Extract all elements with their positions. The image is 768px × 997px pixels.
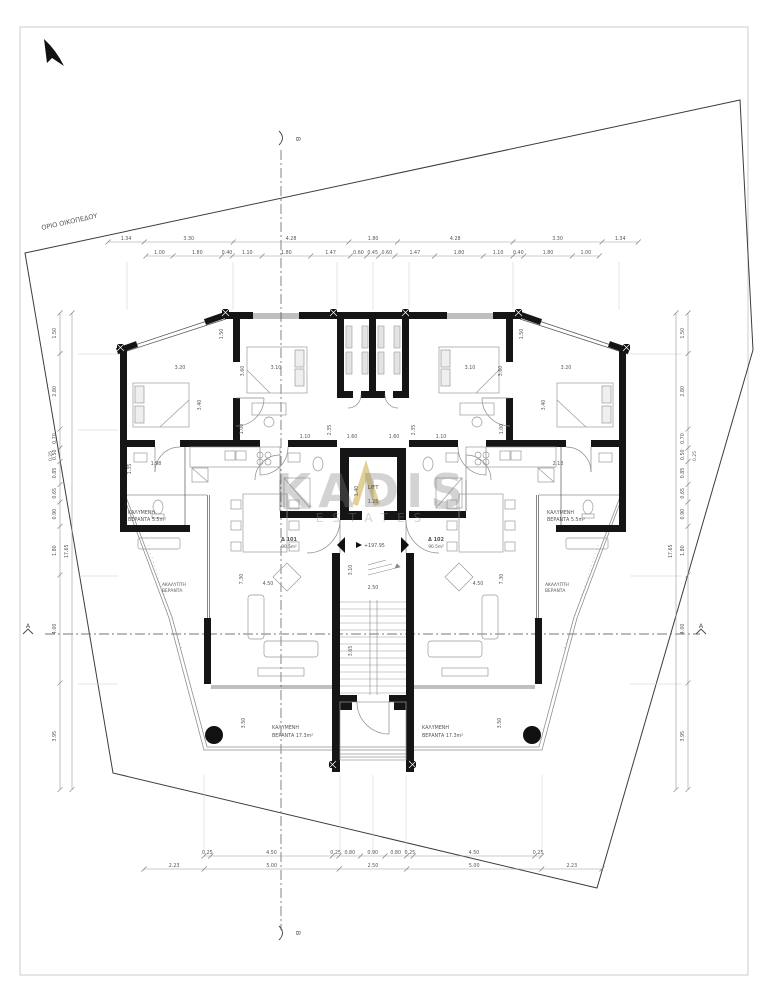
- door-swing-marker: [401, 537, 409, 553]
- dim-value: 0.50: [680, 449, 686, 460]
- dim-label: 3.40: [197, 400, 203, 411]
- dim-value: 3.30: [183, 236, 194, 242]
- dim-label: 2.35: [411, 425, 417, 436]
- dim-label: 1.35: [127, 464, 133, 475]
- watermark-sub: ESTATES: [316, 511, 430, 525]
- dim-label: 3.60: [240, 366, 246, 377]
- apartment-area: 90.5m²: [281, 544, 297, 550]
- dim-value: 0.25: [533, 850, 544, 856]
- veranda-label: ΒΕΡΑΝΤΑ: [162, 588, 182, 594]
- veranda-label: ΒΕΡΑΝΤΑ 17.3m²: [422, 733, 463, 739]
- dim-value: 4.28: [450, 236, 461, 242]
- dim-value: 4.28: [286, 236, 297, 242]
- veranda-label: ΒΕΡΑΝΤΑ 5.5m²: [547, 517, 585, 523]
- dim-value: 0.80: [390, 850, 401, 856]
- apartment-area: 90.5m²: [428, 544, 444, 550]
- dim-label: 4.50: [263, 581, 274, 587]
- dim-label: +197.95: [364, 543, 385, 549]
- veranda-label: ΚΑΛΥΜΕΝΗ: [422, 725, 449, 731]
- dim-value: 0.60: [381, 250, 392, 256]
- dim-label: 3.50: [497, 718, 503, 729]
- dim-value: 5.00: [266, 863, 277, 869]
- dim-value: 0.80: [344, 850, 355, 856]
- bed: [557, 383, 613, 427]
- dim-value: 0.25: [330, 850, 341, 856]
- veranda-label: ΒΕΡΑΝΤΑ 17.3m²: [272, 733, 313, 739]
- dim-value: 0.85: [52, 468, 58, 479]
- dim-label: 7.30: [499, 574, 505, 585]
- dim-chain-left-outer: 1.502.800.700.500.850.650.901.804.003.95: [52, 311, 63, 793]
- dim-value: 0.25: [405, 850, 416, 856]
- dim-label: 3.20: [175, 365, 186, 371]
- dim-label: 2.50: [368, 585, 379, 591]
- dim-value: 2.23: [566, 863, 577, 869]
- dim-value: 5.00: [469, 863, 480, 869]
- column: [523, 726, 541, 744]
- section-label: B: [294, 931, 302, 935]
- dim-label: 3.10: [465, 365, 476, 371]
- dim-value: 1.34: [121, 236, 132, 242]
- walls: [120, 312, 626, 772]
- dim-value: 4.00: [52, 624, 58, 635]
- dim-label: 3.60: [498, 366, 504, 377]
- dim-value: 17.65: [668, 544, 674, 558]
- kitchen-counter: [466, 447, 556, 482]
- dim-value: 0.70: [52, 433, 58, 444]
- section-label: A: [699, 622, 704, 630]
- veranda-label: ΚΑΛΥΜΕΝΗ: [547, 510, 574, 516]
- dim-value: 1.50: [52, 328, 58, 339]
- column: [205, 726, 223, 744]
- dim-value: 1.00: [580, 250, 591, 256]
- drawing-sheet: KADIS ESTATES 1.343.304.281.804.283.301.…: [0, 0, 768, 997]
- extension-lines: [78, 262, 682, 852]
- dim-label: 1.10: [436, 434, 447, 440]
- dim-value: 3.95: [52, 731, 58, 742]
- dim-value: 1.47: [409, 250, 420, 256]
- watermark-word: KADIS: [276, 464, 471, 518]
- veranda-label: ΚΑΛΥΜΕΝΗ: [272, 725, 299, 731]
- dim-value: 1.00: [154, 250, 165, 256]
- dim-label: 3.10: [271, 365, 282, 371]
- dim-label: LIFT: [367, 485, 379, 491]
- dim-label: 1.98: [151, 461, 162, 467]
- planter: [138, 538, 180, 549]
- dim-label: 1.60: [347, 434, 358, 440]
- dim-value: 2.50: [368, 863, 379, 869]
- planter: [566, 538, 608, 549]
- dim-value: 2.80: [52, 386, 58, 397]
- watermark: KADIS ESTATES: [276, 464, 471, 525]
- sofa: [248, 563, 498, 676]
- veranda-label: ΒΕΡΑΝΤΑ: [545, 588, 565, 594]
- dim-label: 7.30: [239, 574, 245, 585]
- dim-value: 0.65: [680, 488, 686, 499]
- dim-value: 0.60: [353, 250, 364, 256]
- dim-value: 0.25: [202, 850, 213, 856]
- text-labels: 3.203.103.603.401.501.503.103.203.603.40…: [26, 137, 704, 935]
- dim-label: 1.10: [300, 434, 311, 440]
- dim-value: 1.10: [242, 250, 253, 256]
- veranda-label: ΒΕΡΑΝΤΑ 5.5m²: [128, 517, 166, 523]
- veranda-slab: [123, 495, 623, 750]
- dim-value: 2.23: [169, 863, 180, 869]
- dim-label: 3.20: [561, 365, 572, 371]
- dim-label: 0.25: [48, 451, 54, 461]
- dim-chain-top-row-1: 1.343.304.281.804.283.301.34: [106, 236, 641, 245]
- dim-value: 2.80: [680, 386, 686, 397]
- veranda-label: ΑΚΑΛΥΠΤΗ: [545, 582, 569, 588]
- dim-value: 3.30: [552, 236, 563, 242]
- dim-label: 3.10: [348, 565, 354, 576]
- plot-boundary-label: ΟΡΙΟ ΟΙΚΟΠΕΔΟΥ: [41, 212, 98, 232]
- dim-value: 0.85: [680, 468, 686, 479]
- dim-value: 0.40: [222, 250, 233, 256]
- balcony-railing: [340, 702, 406, 760]
- stair-direction-annotation: [368, 560, 400, 575]
- dim-label: 1.25: [368, 499, 379, 505]
- dim-label: 1.00: [499, 424, 505, 435]
- kitchen-counter: [190, 447, 280, 482]
- dim-label: 3.50: [241, 718, 247, 729]
- dim-value: 1.80: [281, 250, 292, 256]
- dim-value: 1.80: [680, 545, 686, 556]
- dim-value: 0.45: [367, 250, 378, 256]
- dim-value: 1.80: [543, 250, 554, 256]
- dim-value: 1.47: [325, 250, 336, 256]
- dim-chain-top-row-2: 1.001.800.401.101.801.470.600.450.601.47…: [144, 250, 602, 259]
- north-arrow-icon: [44, 39, 64, 66]
- dim-label: 1.50: [219, 329, 225, 340]
- dim-value: 1.80: [454, 250, 465, 256]
- level-marker-icon: [356, 542, 362, 548]
- dim-label: 1.40: [354, 486, 360, 497]
- desk: [252, 403, 494, 427]
- dim-label: 4.50: [473, 581, 484, 587]
- section-label: B: [294, 137, 302, 141]
- bed: [133, 383, 189, 427]
- apartment-id: Δ 101: [281, 537, 298, 543]
- dim-value: 17.65: [64, 544, 70, 558]
- veranda-label: ΚΑΛΥΜΕΝΗ: [128, 510, 155, 516]
- apartment-id: Δ 102: [428, 537, 445, 543]
- dim-label: 0.25: [692, 451, 698, 461]
- dim-value: 1.80: [368, 236, 379, 242]
- dim-label: 1.00: [239, 424, 245, 435]
- section-label: A: [26, 622, 31, 630]
- dim-value: 1.10: [493, 250, 504, 256]
- dim-chain-bottom-row-1: 0.254.500.250.800.900.800.254.500.25: [202, 850, 545, 859]
- dim-value: 1.50: [680, 328, 686, 339]
- dim-label: 3.65: [348, 646, 354, 657]
- dim-value: 0.65: [52, 488, 58, 499]
- dim-value: 0.90: [52, 509, 58, 520]
- dim-value: 4.50: [469, 850, 480, 856]
- dim-chain-bottom-row-2: 2.235.002.505.002.23: [142, 863, 605, 872]
- dim-value: 0.90: [367, 850, 378, 856]
- dim-label: 1.50: [519, 329, 525, 340]
- dim-chain-left-inner: 17.65: [64, 311, 75, 793]
- dim-value: 0.70: [680, 433, 686, 444]
- dim-chain-right-inner: 17.65: [668, 311, 679, 793]
- dim-value: 1.34: [615, 236, 626, 242]
- dim-value: 1.80: [192, 250, 203, 256]
- door-swing-marker: [337, 537, 345, 553]
- dim-value: 4.50: [266, 850, 277, 856]
- dim-label: 3.40: [541, 400, 547, 411]
- dim-label: 2.13: [553, 461, 564, 467]
- dim-label: 1.60: [389, 434, 400, 440]
- dim-value: 4.00: [680, 624, 686, 635]
- floor-plan-svg: KADIS ESTATES 1.343.304.281.804.283.301.…: [0, 0, 768, 997]
- dim-value: 3.95: [680, 731, 686, 742]
- veranda-label: ΑΚΑΛΥΠΤΗ: [162, 582, 186, 588]
- dim-label: 2.35: [327, 425, 333, 436]
- dim-value: 1.80: [52, 545, 58, 556]
- dim-chain-right-outer: 1.502.800.700.500.850.650.901.804.003.95: [680, 311, 691, 793]
- dim-value: 0.40: [513, 250, 524, 256]
- dim-value: 0.90: [680, 509, 686, 520]
